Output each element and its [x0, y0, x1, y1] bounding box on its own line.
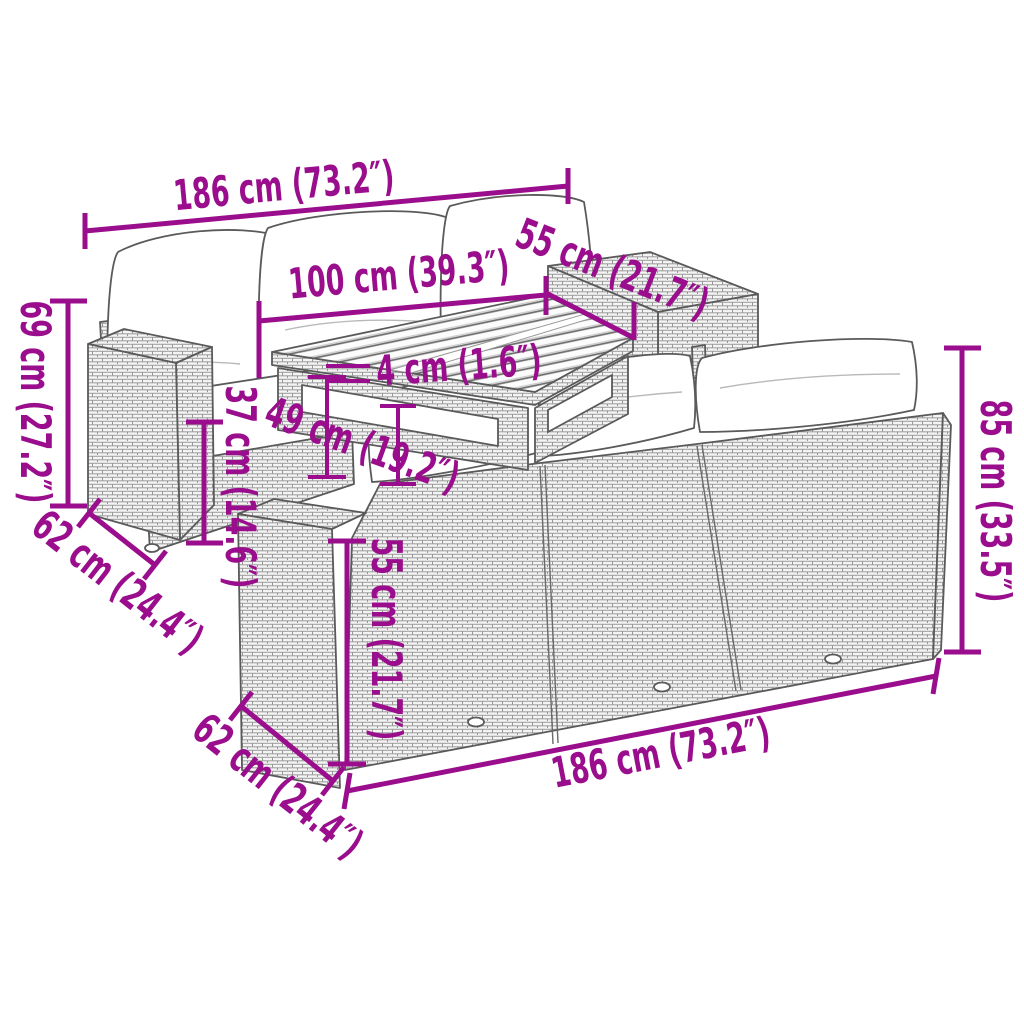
sofa-foot-icon — [145, 544, 159, 552]
back-sofa-armrest-side — [176, 347, 214, 540]
dim-label: 186 cm (73.2″) — [171, 152, 396, 221]
dim-label: 55 cm (21.7″) — [361, 538, 410, 741]
front-cushion — [696, 339, 917, 432]
dim-label: 85 cm (33.5″) — [970, 400, 1019, 603]
diagram-canvas: 186 cm (73.2″) 55 cm (21.7″) 100 cm (39.… — [0, 0, 1024, 1024]
sofa-foot-icon — [654, 683, 670, 692]
dim-label: 69 cm (27.2″) — [10, 301, 59, 504]
sofa-foot-icon — [468, 718, 484, 727]
back-sofa-armrest-front — [88, 344, 180, 540]
sofa-foot-icon — [825, 655, 841, 664]
product-dimension-diagram: 186 cm (73.2″) 55 cm (21.7″) 100 cm (39.… — [0, 0, 1024, 1024]
dim-label: 37 cm (14.6″) — [215, 386, 264, 589]
